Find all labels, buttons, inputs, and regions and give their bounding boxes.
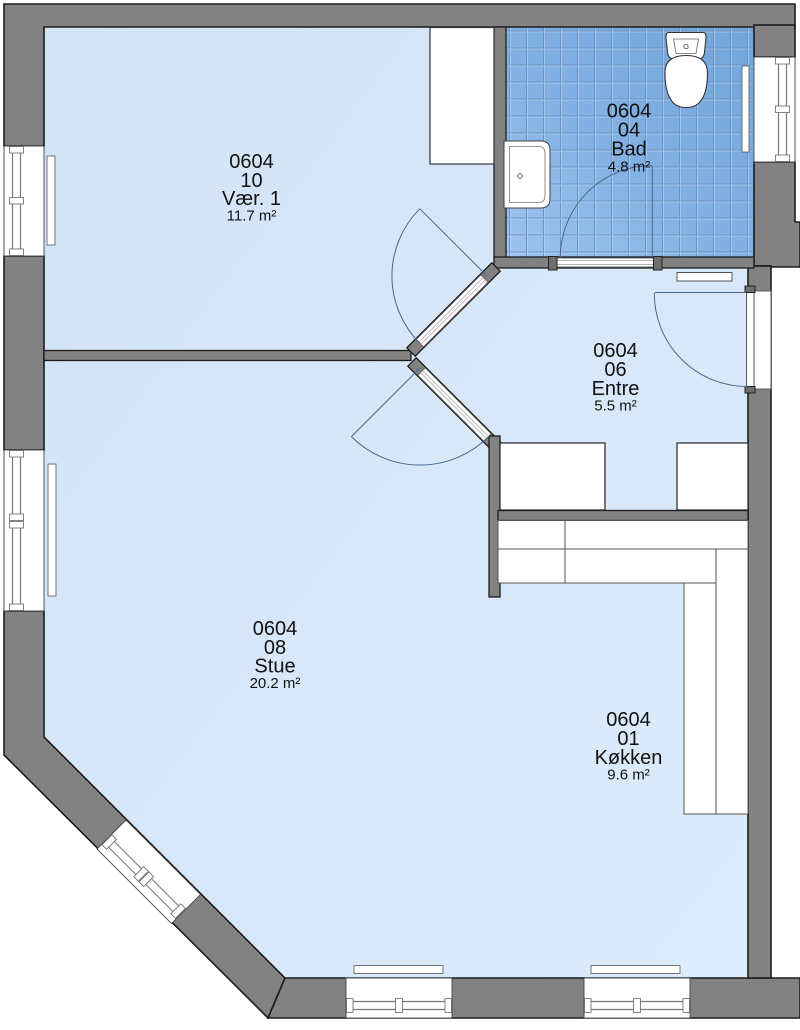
- svg-text:11.7 m²: 11.7 m²: [227, 208, 277, 225]
- svg-text:5.5 m²: 5.5 m²: [594, 398, 637, 415]
- svg-text:4.8 m²: 4.8 m²: [608, 159, 651, 176]
- svg-text:9.6 m²: 9.6 m²: [607, 767, 650, 784]
- svg-text:20.2 m²: 20.2 m²: [250, 675, 301, 692]
- svg-text:Bad: Bad: [611, 139, 647, 161]
